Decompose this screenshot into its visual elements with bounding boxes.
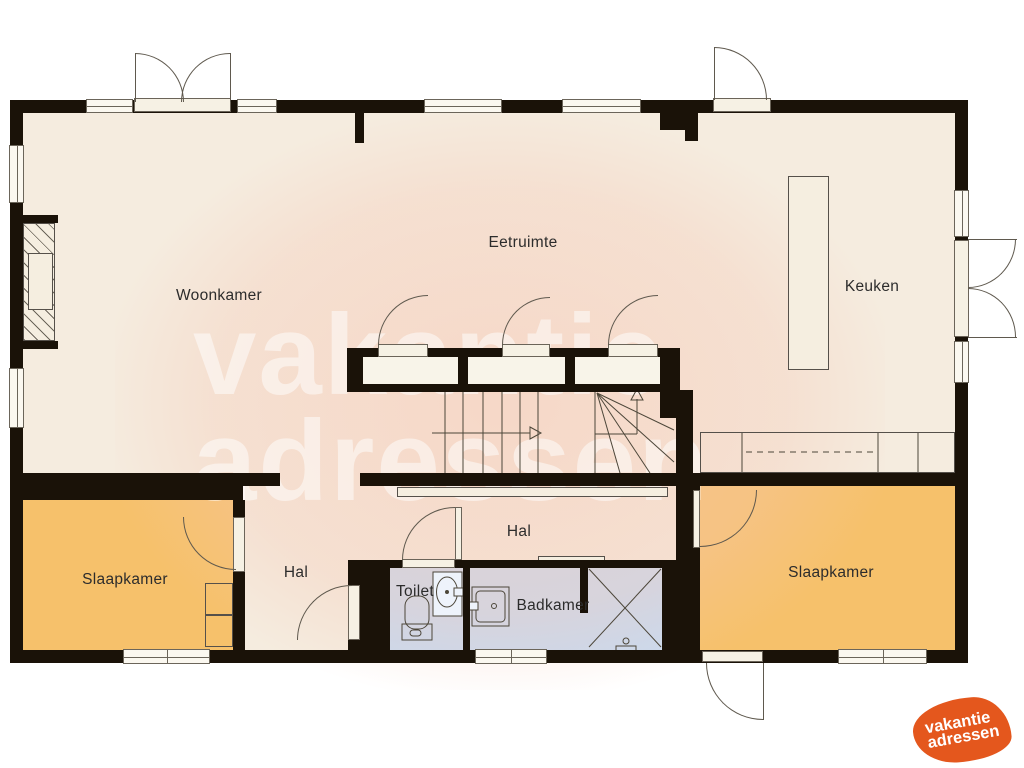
- kitchen-counter: [700, 432, 955, 473]
- sink-icon: [433, 572, 463, 616]
- door-leaf: [763, 663, 764, 720]
- room-label-eetruimte: Eetruimte: [488, 234, 557, 252]
- window: [424, 99, 502, 113]
- shower-icon: [589, 569, 661, 653]
- room-label-woonkamer: Woonkamer: [176, 287, 262, 305]
- room-label-toilet: Toilet: [396, 583, 434, 601]
- window: [9, 368, 24, 428]
- door-opening-bedroom-right: [693, 490, 700, 548]
- door-opening-top-right: [713, 98, 771, 112]
- closet-door-leaf: [502, 344, 550, 357]
- wall-bedroom-right-top: [693, 473, 955, 486]
- door-opening-kitchen-french: [954, 240, 969, 337]
- door-leaf: [230, 53, 231, 102]
- wall-notch-2: [685, 130, 698, 141]
- wall-notch-1: [660, 113, 698, 130]
- floorplan-canvas: vakantie adressen: [0, 0, 1024, 768]
- wall-stairs-right-lower: [676, 390, 693, 483]
- wall-toilet-bathroom: [463, 568, 470, 650]
- window: [9, 145, 24, 203]
- room-label-slaapkamer-right: Slaapkamer: [788, 564, 874, 582]
- wall-stairs-right-upper: [660, 348, 676, 418]
- room-label-hal-small: Hal: [284, 564, 308, 582]
- window: [237, 99, 277, 113]
- window: [954, 341, 969, 383]
- door-opening-bottom-right: [702, 651, 763, 662]
- fireplace-hearth: [28, 253, 53, 310]
- window: [838, 649, 927, 664]
- wall-shower-right: [662, 560, 700, 650]
- closet-2: [468, 357, 565, 384]
- closet-door-leaf: [378, 344, 428, 357]
- window: [86, 99, 133, 113]
- room-label-hal-main: Hal: [507, 523, 531, 541]
- bedroom-left-closet-top: [205, 583, 233, 615]
- washbasin-icon: [468, 587, 509, 626]
- wall-bedroom-left-top: [10, 486, 243, 500]
- closet-door-leaf: [608, 344, 658, 357]
- bedroom-left-closet-bottom: [205, 615, 233, 647]
- room-label-keuken: Keuken: [845, 278, 899, 296]
- logo-text: vakantie adressen: [924, 709, 1001, 751]
- closet-1: [363, 357, 458, 384]
- window: [123, 649, 210, 664]
- toilet-door-leaf: [455, 507, 462, 560]
- door-leaf: [968, 337, 1017, 338]
- wall-stub-top: [355, 113, 364, 143]
- kitchen-island: [788, 176, 829, 370]
- wall-wetrooms-top: [348, 560, 676, 568]
- sideboard: [397, 487, 668, 497]
- stairs-direction-arrow: [530, 427, 541, 439]
- window: [562, 99, 641, 113]
- room-label-badkamer: Badkamer: [516, 597, 589, 615]
- room-label-slaapkamer-left: Slaapkamer: [82, 571, 168, 589]
- window: [954, 190, 969, 237]
- wall-living-bottom: [10, 473, 280, 486]
- toilet-icon: [402, 596, 432, 640]
- window: [475, 649, 547, 664]
- wall-stairs-bottom: [360, 473, 693, 486]
- door-opening-toilet: [402, 559, 455, 568]
- stairs: [432, 389, 674, 473]
